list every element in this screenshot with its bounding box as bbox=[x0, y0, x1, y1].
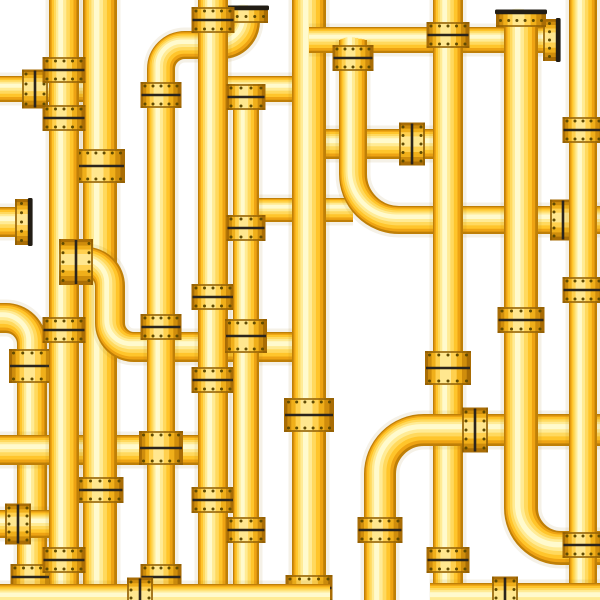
flange-bolt bbox=[26, 515, 29, 518]
flange-bolt bbox=[370, 520, 373, 523]
pipe-coupling-flange bbox=[43, 105, 86, 131]
pipe-coupling-flange bbox=[139, 431, 183, 465]
flange-bolt bbox=[455, 568, 458, 571]
flange-bolt bbox=[344, 48, 347, 51]
flange-bolt bbox=[553, 219, 556, 222]
flange-bolt bbox=[144, 567, 147, 570]
flange-bolt bbox=[142, 434, 145, 437]
flange-bolt bbox=[336, 66, 339, 69]
flange-bolt bbox=[447, 550, 450, 553]
flange-bolt bbox=[71, 338, 74, 341]
flange-bolt bbox=[438, 550, 441, 553]
flange-bolt bbox=[111, 152, 114, 155]
flange-bolt bbox=[447, 43, 450, 46]
flange-bolt bbox=[361, 520, 364, 523]
pipe-coupling-flange bbox=[43, 317, 86, 343]
flange-bolt bbox=[566, 535, 569, 538]
flange-bolt bbox=[250, 236, 253, 239]
flange-bolt bbox=[80, 550, 83, 553]
flange-bolt bbox=[447, 25, 450, 28]
pipe-v-d bbox=[225, 84, 267, 600]
flange-bolt bbox=[8, 523, 11, 526]
pipe-coupling-flange bbox=[284, 398, 334, 432]
flange-bolt bbox=[195, 490, 198, 493]
flange-bolt bbox=[501, 328, 504, 331]
flange-bolt bbox=[420, 134, 423, 137]
flange-bolt bbox=[203, 10, 206, 13]
flange-bolt bbox=[260, 538, 263, 541]
flange-bolt bbox=[195, 370, 198, 373]
flange-bolt bbox=[250, 218, 253, 221]
flange-bolt bbox=[148, 581, 151, 584]
flange-bolt bbox=[40, 378, 43, 381]
flange-bolt bbox=[203, 370, 206, 373]
flange-bolt bbox=[63, 550, 66, 553]
flange-bolt bbox=[195, 10, 198, 13]
flange-bolt bbox=[430, 550, 433, 553]
flange-bolt bbox=[71, 108, 74, 111]
flange-bolt bbox=[260, 87, 263, 90]
flange-bolt bbox=[553, 203, 556, 206]
flange-bolt bbox=[553, 235, 556, 238]
flange-bolt bbox=[25, 93, 28, 96]
flange-bolt bbox=[464, 550, 467, 553]
flange-bolt bbox=[203, 305, 206, 308]
pipe-coupling-flange bbox=[425, 351, 471, 385]
flange-bolt bbox=[160, 434, 163, 437]
pipeline-illustration bbox=[0, 0, 600, 600]
flange-bolt bbox=[388, 538, 391, 541]
flange-bolt bbox=[402, 151, 405, 154]
flange-bolt bbox=[212, 10, 215, 13]
flange-bolt bbox=[71, 320, 74, 323]
flange-bolt bbox=[388, 520, 391, 523]
flange-bolt bbox=[212, 388, 215, 391]
flange-bolt bbox=[456, 380, 459, 383]
flange-bolt bbox=[261, 348, 264, 351]
flange-bolt bbox=[54, 126, 57, 129]
flange-bolt bbox=[63, 78, 66, 81]
flange-bolt bbox=[420, 151, 423, 154]
pipe-coupling-flange bbox=[227, 84, 266, 110]
flange-bolt bbox=[230, 236, 233, 239]
flange-bolt bbox=[574, 553, 577, 556]
flange-bolt bbox=[240, 218, 243, 221]
flange-bolt bbox=[80, 320, 83, 323]
flange-bolt bbox=[168, 317, 171, 320]
flange-bolt bbox=[21, 378, 24, 381]
flange-bolt bbox=[250, 538, 253, 541]
flange-bolt bbox=[80, 568, 83, 571]
pipe-coupling-flange bbox=[427, 547, 470, 573]
flange-bolt bbox=[379, 538, 382, 541]
flange-bolt bbox=[12, 352, 15, 355]
flange-bolt bbox=[14, 567, 17, 570]
pipe-coupling-flange bbox=[141, 314, 182, 340]
flange-bolt bbox=[220, 490, 223, 493]
pipe-coupling-flange bbox=[5, 504, 31, 545]
flange-bolt bbox=[260, 520, 263, 523]
flange-bolt bbox=[465, 420, 468, 423]
pipe-v-main-a bbox=[43, 0, 86, 600]
flange-bolt bbox=[39, 567, 42, 570]
flange-bolt bbox=[582, 280, 585, 283]
pipe-end-flange bbox=[495, 10, 547, 28]
pipe-coupling-flange bbox=[399, 123, 425, 166]
flange-bolt bbox=[465, 429, 468, 432]
flange-bolt bbox=[212, 287, 215, 290]
pipe-coupling-flange bbox=[225, 319, 267, 353]
flange-bolt bbox=[253, 348, 256, 351]
flange-bolt bbox=[430, 568, 433, 571]
flange-bolt bbox=[63, 60, 66, 63]
flange-cap bbox=[556, 18, 561, 62]
flange-cap bbox=[28, 198, 33, 246]
flange-bolt bbox=[465, 447, 468, 450]
pipe-coupling-flange bbox=[141, 82, 182, 108]
flange-bolt bbox=[590, 553, 593, 556]
flange-bolt bbox=[195, 305, 198, 308]
flange-bolt bbox=[8, 539, 11, 542]
flange-bolt bbox=[438, 43, 441, 46]
flange-bolt bbox=[352, 48, 355, 51]
flange-bolt bbox=[230, 218, 233, 221]
flange-bolt bbox=[80, 108, 83, 111]
flange-bolt bbox=[46, 338, 49, 341]
flange-bolt bbox=[260, 236, 263, 239]
flange-bolt bbox=[212, 28, 215, 31]
flange-bolt bbox=[590, 138, 593, 141]
flange-bolt bbox=[25, 83, 28, 86]
flange-bolt bbox=[236, 348, 239, 351]
flange-bolt bbox=[361, 538, 364, 541]
flange-bolt bbox=[80, 78, 83, 81]
flange-bolt bbox=[118, 498, 121, 501]
flange-bolt bbox=[108, 498, 111, 501]
flange-bolt bbox=[236, 322, 239, 325]
pipe-coupling-flange bbox=[43, 57, 86, 83]
flange-bolt bbox=[220, 508, 223, 511]
flange-bolt bbox=[43, 93, 46, 96]
flange-bolt bbox=[26, 539, 29, 542]
flange-bolt bbox=[513, 580, 516, 583]
flange-bolt bbox=[212, 508, 215, 511]
flange-bolt bbox=[430, 43, 433, 46]
flange-bolt bbox=[317, 578, 320, 581]
flange-bolt bbox=[46, 568, 49, 571]
flange-bolt bbox=[428, 380, 431, 383]
flange-bolt bbox=[203, 508, 206, 511]
flange-bolt bbox=[590, 280, 593, 283]
flange-bolt bbox=[529, 310, 532, 313]
flange-bolt bbox=[320, 427, 323, 430]
pipe-coupling-flange bbox=[227, 517, 266, 543]
pipe-end-flange bbox=[15, 198, 33, 246]
flange-bolt bbox=[142, 460, 145, 463]
flange-bolt bbox=[465, 354, 468, 357]
flange-bolt bbox=[94, 178, 97, 181]
flange-bolt bbox=[574, 535, 577, 538]
pipe-s-curve bbox=[59, 239, 309, 347]
flange-bolt bbox=[46, 320, 49, 323]
pipe-coupling-flange bbox=[563, 277, 600, 303]
flange-bolt bbox=[368, 66, 371, 69]
flange-bolt bbox=[298, 578, 301, 581]
pipe-coupling-flange bbox=[127, 578, 153, 600]
flange-bolt bbox=[438, 568, 441, 571]
flange-bolt bbox=[71, 126, 74, 129]
flange-bolt bbox=[574, 298, 577, 301]
flange-bolt bbox=[230, 105, 233, 108]
flange-bolt bbox=[312, 401, 315, 404]
flange-bolt bbox=[455, 25, 458, 28]
flange-bolt bbox=[240, 236, 243, 239]
flange-bolt bbox=[397, 538, 400, 541]
flange-bolt bbox=[590, 120, 593, 123]
flange-bolt bbox=[344, 66, 347, 69]
flange-bolt bbox=[80, 126, 83, 129]
flange-bolt bbox=[430, 25, 433, 28]
flange-bolt bbox=[160, 317, 163, 320]
flange-bolt bbox=[261, 322, 264, 325]
flange-bolt bbox=[245, 348, 248, 351]
flange-bolt bbox=[111, 178, 114, 181]
flange-bolt bbox=[144, 85, 147, 88]
pipe-coupling-flange bbox=[333, 45, 374, 71]
flange-bolt bbox=[195, 508, 198, 511]
flange-bolt bbox=[220, 305, 223, 308]
flange-bolt bbox=[54, 60, 57, 63]
flange-bolt bbox=[220, 28, 223, 31]
flange-bolt bbox=[420, 143, 423, 146]
flange-cap bbox=[495, 10, 547, 15]
flange-bolt bbox=[483, 420, 486, 423]
flange-bolt bbox=[177, 460, 180, 463]
flange-bolt bbox=[574, 138, 577, 141]
flange-bolt bbox=[370, 538, 373, 541]
flange-bolt bbox=[520, 310, 523, 313]
flange-bolt bbox=[203, 490, 206, 493]
flange-bolt bbox=[63, 568, 66, 571]
flange-bolt bbox=[22, 567, 25, 570]
flange-bolt bbox=[240, 520, 243, 523]
flange-bolt bbox=[402, 160, 405, 163]
pipe-coupling-flange bbox=[192, 487, 235, 513]
flange-bolt bbox=[195, 28, 198, 31]
flange-bolt bbox=[312, 427, 315, 430]
pipe-coupling-flange bbox=[498, 307, 545, 333]
flange-bolt bbox=[360, 66, 363, 69]
flange-bolt bbox=[590, 535, 593, 538]
flange-bolt bbox=[176, 85, 179, 88]
flange-bolt bbox=[176, 317, 179, 320]
flange-bolt bbox=[203, 28, 206, 31]
flange-bolt bbox=[327, 578, 330, 581]
flange-bolt bbox=[195, 287, 198, 290]
flange-bolt bbox=[510, 328, 513, 331]
flange-bolt bbox=[203, 388, 206, 391]
flange-bolt bbox=[230, 538, 233, 541]
flange-bolt bbox=[26, 531, 29, 534]
flange-bolt bbox=[8, 507, 11, 510]
flange-bolt bbox=[71, 78, 74, 81]
flange-bolt bbox=[99, 498, 102, 501]
flange-bolt bbox=[26, 523, 29, 526]
pipe-coupling-flange bbox=[192, 367, 235, 393]
flange-bolt bbox=[495, 588, 498, 591]
flange-bolt bbox=[250, 87, 253, 90]
flange-bolt bbox=[118, 480, 121, 483]
flange-bolt bbox=[168, 567, 171, 570]
flange-bolt bbox=[582, 298, 585, 301]
flange-bolt bbox=[62, 270, 65, 273]
flange-bolt bbox=[456, 354, 459, 357]
flange-bolt bbox=[320, 401, 323, 404]
flange-bolt bbox=[455, 43, 458, 46]
flange-bolt bbox=[328, 427, 331, 430]
pipe-stub-left-end bbox=[0, 198, 33, 246]
flange-bolt bbox=[152, 85, 155, 88]
pipe-coupling-flange bbox=[563, 117, 600, 143]
flange-bolt bbox=[195, 388, 198, 391]
flange-bolt bbox=[160, 567, 163, 570]
flange-bolt bbox=[303, 427, 306, 430]
flange-bolt bbox=[63, 108, 66, 111]
pipe-v-k bbox=[563, 0, 600, 600]
flange-bolt bbox=[287, 427, 290, 430]
flange-bolt bbox=[130, 597, 133, 600]
flange-bolt bbox=[8, 531, 11, 534]
flange-bolt bbox=[54, 78, 57, 81]
flange-bolt bbox=[46, 60, 49, 63]
pipe-coupling-flange bbox=[427, 22, 470, 48]
flange-bolt bbox=[46, 126, 49, 129]
flange-bolt bbox=[229, 28, 232, 31]
flange-bolt bbox=[86, 152, 89, 155]
flange-bolt bbox=[447, 380, 450, 383]
pipe-v-e bbox=[284, 0, 334, 600]
pipe-j-curve bbox=[358, 408, 600, 600]
flange-bolt bbox=[228, 348, 231, 351]
flange-bolt bbox=[25, 103, 28, 106]
flange-bolt bbox=[168, 335, 171, 338]
flange-bolt bbox=[260, 105, 263, 108]
flange-bolt bbox=[31, 567, 34, 570]
flange-bolt bbox=[379, 520, 382, 523]
pipe-coupling-flange bbox=[358, 517, 403, 543]
flange-bolt bbox=[352, 66, 355, 69]
flange-bolt bbox=[229, 10, 232, 13]
flange-bolt bbox=[63, 126, 66, 129]
flange-bolt bbox=[177, 434, 180, 437]
flange-bolt bbox=[176, 103, 179, 106]
flange-bolt bbox=[574, 120, 577, 123]
flange-bolt bbox=[590, 298, 593, 301]
flange-bolt bbox=[295, 401, 298, 404]
flange-bolt bbox=[240, 105, 243, 108]
pipeline-pattern-svg bbox=[0, 0, 600, 600]
pipe-coupling-flange bbox=[227, 215, 266, 241]
flange-bolt bbox=[203, 287, 206, 290]
flange-bolt bbox=[539, 310, 542, 313]
flange-bolt bbox=[495, 580, 498, 583]
flange-bolt bbox=[31, 352, 34, 355]
flange-bolt bbox=[46, 550, 49, 553]
flange-bolt bbox=[437, 380, 440, 383]
flange-bolt bbox=[308, 578, 311, 581]
pipe-coupling-flange bbox=[43, 547, 86, 573]
pipe-h-mid bbox=[309, 123, 450, 166]
flange-bolt bbox=[464, 568, 467, 571]
flange-bolt bbox=[328, 401, 331, 404]
flange-bolt bbox=[54, 338, 57, 341]
flange-bolt bbox=[130, 581, 133, 584]
flange-bolt bbox=[483, 429, 486, 432]
flange-bolt bbox=[152, 567, 155, 570]
flange-bolt bbox=[582, 138, 585, 141]
flange-bolt bbox=[240, 87, 243, 90]
flange-bolt bbox=[160, 460, 163, 463]
flange-bolt bbox=[88, 242, 91, 245]
flange-bolt bbox=[428, 354, 431, 357]
flange-bolt bbox=[176, 335, 179, 338]
flange-bolt bbox=[582, 553, 585, 556]
flange-bolt bbox=[553, 211, 556, 214]
flange-bolt bbox=[529, 328, 532, 331]
flange-bolt bbox=[464, 25, 467, 28]
flange-bolt bbox=[31, 378, 34, 381]
flange-bolt bbox=[144, 317, 147, 320]
flange-bolt bbox=[103, 152, 106, 155]
pipe-h-bottom-left bbox=[0, 578, 330, 600]
flange-bolt bbox=[230, 520, 233, 523]
flange-bolt bbox=[483, 438, 486, 441]
flange-bolt bbox=[152, 103, 155, 106]
flange-bolt bbox=[176, 567, 179, 570]
flange-bolt bbox=[160, 335, 163, 338]
flange-bolt bbox=[88, 270, 91, 273]
flange-bolt bbox=[62, 279, 65, 282]
flange-bolt bbox=[455, 550, 458, 553]
flange-bolt bbox=[402, 126, 405, 129]
flange-bolt bbox=[99, 480, 102, 483]
flange-bolt bbox=[360, 48, 363, 51]
flange-bolt bbox=[437, 354, 440, 357]
flange-bolt bbox=[230, 87, 233, 90]
flange-bolt bbox=[447, 568, 450, 571]
flange-bolt bbox=[566, 553, 569, 556]
flange-bolt bbox=[513, 597, 516, 600]
flange-bolt bbox=[21, 352, 24, 355]
pipe-coupling-flange bbox=[59, 239, 93, 285]
flange-bolt bbox=[438, 25, 441, 28]
flange-bolt bbox=[464, 43, 467, 46]
flange-bolt bbox=[260, 218, 263, 221]
flange-bolt bbox=[582, 535, 585, 538]
flange-bolt bbox=[62, 261, 65, 264]
flange-bolt bbox=[54, 108, 57, 111]
flange-bolt bbox=[40, 352, 43, 355]
flange-bolt bbox=[88, 279, 91, 282]
flange-bolt bbox=[168, 103, 171, 106]
flange-bolt bbox=[148, 597, 151, 600]
flange-bolt bbox=[250, 520, 253, 523]
flange-bolt bbox=[212, 305, 215, 308]
flange-bolt bbox=[303, 401, 306, 404]
flange-bolt bbox=[88, 261, 91, 264]
flange-bolt bbox=[574, 280, 577, 283]
flange-bolt bbox=[336, 48, 339, 51]
